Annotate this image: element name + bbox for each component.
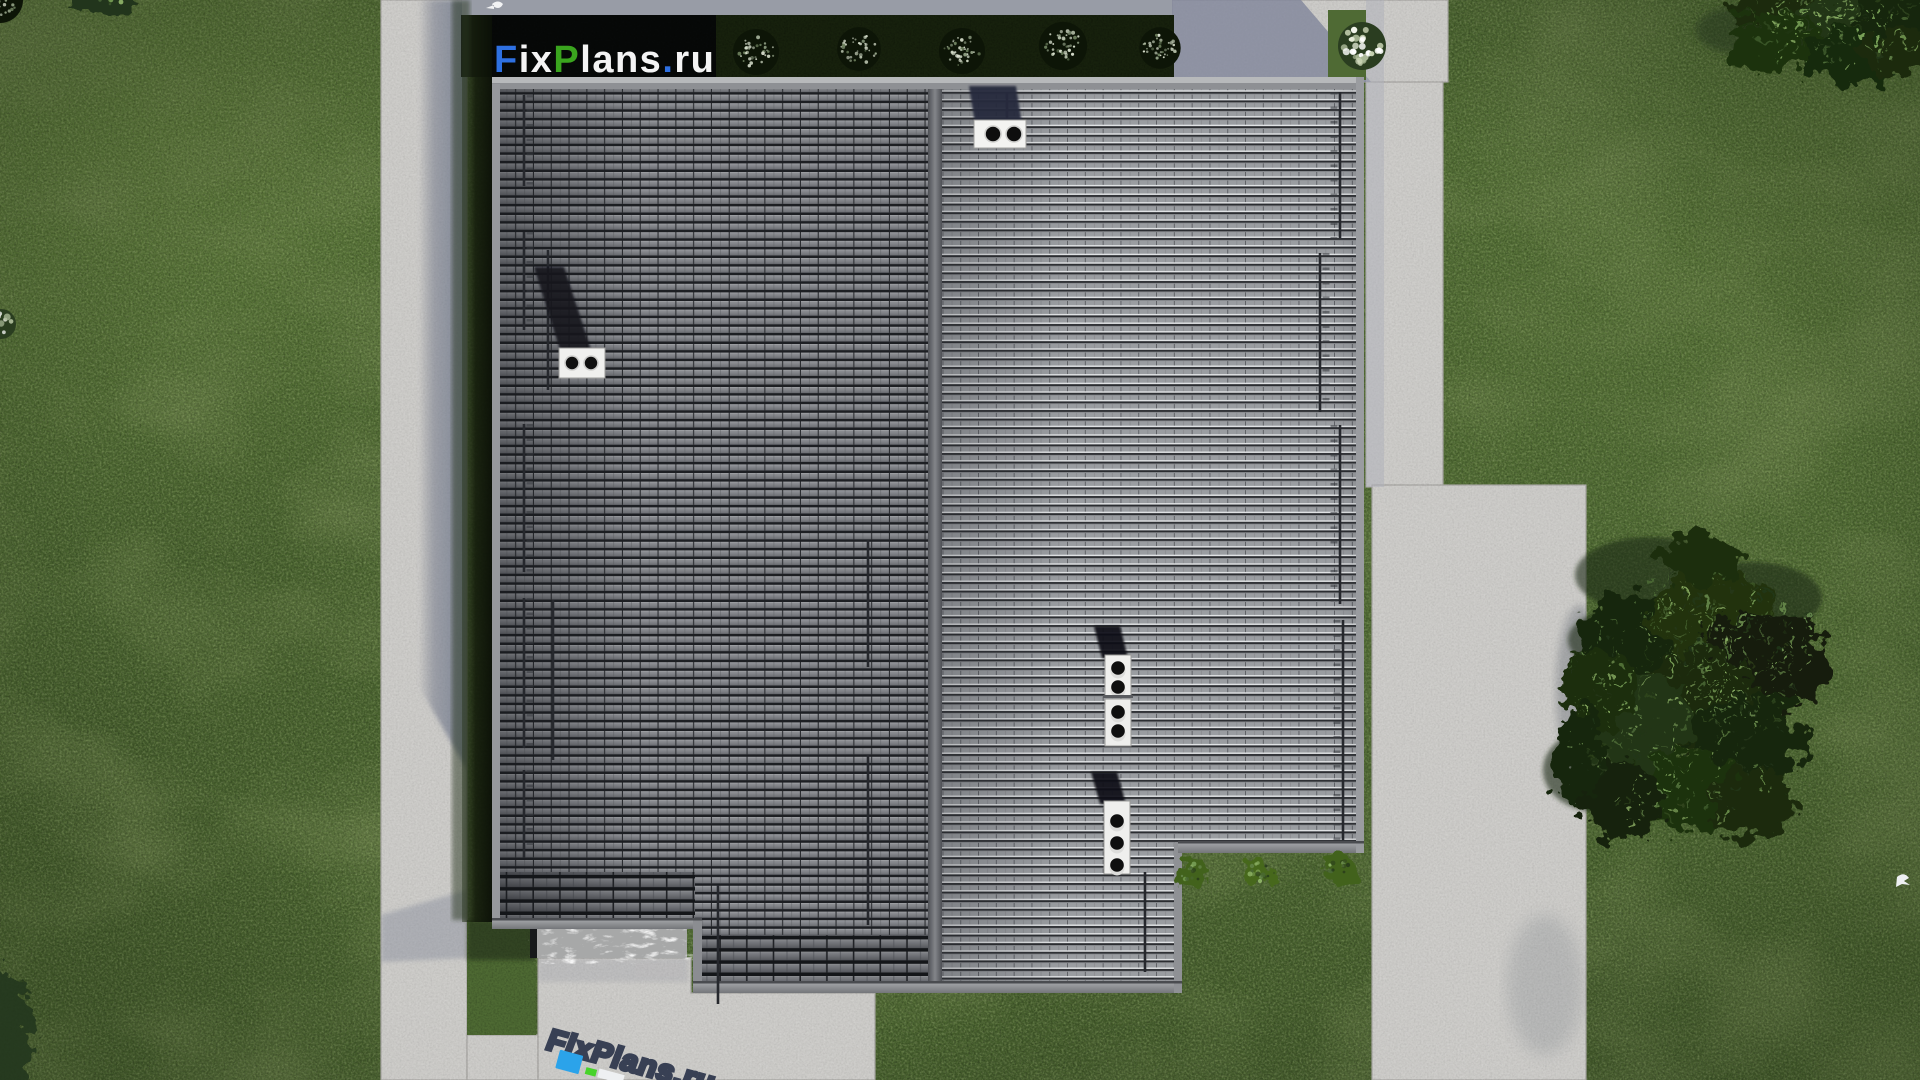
svg-text:FixPlans.ru: FixPlans.ru	[494, 39, 715, 81]
